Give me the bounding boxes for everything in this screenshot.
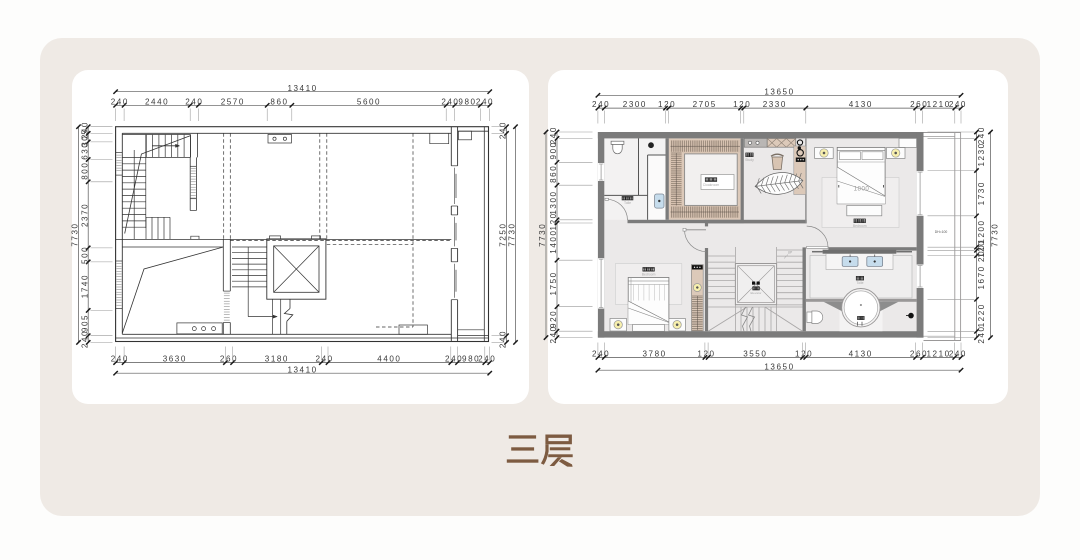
svg-text:1740: 1740	[80, 274, 89, 298]
svg-text:240: 240	[316, 355, 334, 364]
svg-text:240: 240	[592, 100, 610, 109]
svg-text:3180: 3180	[265, 355, 289, 364]
svg-text:240: 240	[977, 325, 986, 343]
svg-text:2330: 2330	[763, 100, 787, 109]
svg-text:240: 240	[111, 97, 129, 106]
svg-text:120: 120	[733, 100, 751, 109]
svg-text:240: 240	[80, 330, 89, 348]
svg-text:3780: 3780	[642, 350, 666, 359]
svg-text:13410: 13410	[287, 365, 317, 374]
svg-text:1400: 1400	[549, 229, 558, 253]
svg-text:120: 120	[697, 350, 715, 359]
svg-text:Bedroom: Bedroom	[642, 272, 656, 276]
svg-text:240: 240	[499, 330, 508, 348]
svg-text:2300: 2300	[623, 100, 647, 109]
svg-text:1220: 1220	[977, 303, 986, 327]
svg-text:1800: 1800	[854, 186, 870, 193]
svg-text:900: 900	[549, 141, 558, 159]
svg-text:Elevator: Elevator	[750, 291, 761, 295]
svg-text:860: 860	[270, 97, 288, 106]
svg-text:7250: 7250	[499, 222, 508, 246]
svg-text:13650: 13650	[764, 362, 794, 371]
svg-text:1670: 1670	[977, 265, 986, 289]
svg-text:1210: 1210	[927, 100, 951, 109]
svg-text:500: 500	[80, 246, 89, 264]
svg-text:240: 240	[445, 355, 463, 364]
svg-text:Study: Study	[745, 158, 754, 162]
svg-text:240: 240	[949, 100, 967, 109]
svg-text:800: 800	[80, 162, 89, 180]
svg-text:240: 240	[185, 97, 203, 106]
svg-text:1730: 1730	[977, 181, 986, 205]
svg-text:7730: 7730	[508, 222, 517, 246]
svg-text:630: 630	[80, 142, 89, 160]
svg-text:1750: 1750	[549, 271, 558, 295]
svg-text:7730: 7730	[538, 223, 547, 247]
svg-text:5600: 5600	[357, 97, 381, 106]
svg-text:905: 905	[80, 314, 89, 332]
svg-text:4130: 4130	[849, 350, 873, 359]
svg-text:3550: 3550	[743, 350, 767, 359]
svg-text:240: 240	[977, 126, 986, 144]
svg-text:240: 240	[549, 325, 558, 343]
svg-text:4400: 4400	[377, 355, 401, 364]
svg-text:240: 240	[478, 355, 496, 364]
svg-text:1300: 1300	[549, 190, 558, 214]
svg-text:260: 260	[910, 350, 928, 359]
svg-text:Toile: Toile	[624, 201, 631, 205]
svg-text:4130: 4130	[849, 100, 873, 109]
svg-text:Toile: Toile	[857, 281, 864, 285]
svg-text:860: 860	[549, 165, 558, 183]
svg-text:240: 240	[476, 97, 494, 106]
svg-text:3630: 3630	[163, 355, 187, 364]
svg-text:13410: 13410	[287, 84, 317, 93]
svg-text:260: 260	[910, 100, 928, 109]
svg-text:120: 120	[549, 212, 558, 230]
svg-text:7730: 7730	[71, 222, 80, 246]
svg-text:240: 240	[592, 350, 610, 359]
svg-text:920: 920	[549, 310, 558, 328]
svg-text:240: 240	[441, 97, 459, 106]
svg-text:240: 240	[949, 350, 967, 359]
svg-text:2705: 2705	[693, 100, 717, 109]
svg-text:Bedroom: Bedroom	[853, 224, 867, 228]
svg-text:240: 240	[111, 355, 129, 364]
svg-text:980: 980	[458, 97, 476, 106]
svg-text:7730: 7730	[990, 223, 999, 247]
svg-text:120: 120	[795, 350, 813, 359]
svg-text:13650: 13650	[764, 87, 794, 96]
svg-text:UP: UP	[788, 251, 792, 255]
svg-text:1210: 1210	[926, 350, 950, 359]
svg-text:DH=100: DH=100	[935, 230, 948, 234]
svg-text:Cloakroom: Cloakroom	[703, 183, 720, 187]
svg-text:200: 200	[977, 244, 986, 262]
svg-text:260: 260	[220, 355, 238, 364]
svg-text:2370: 2370	[80, 203, 89, 227]
svg-text:2440: 2440	[145, 97, 169, 106]
svg-text:2570: 2570	[221, 97, 245, 106]
svg-text:120: 120	[658, 100, 676, 109]
svg-text:240: 240	[499, 121, 508, 139]
svg-text:1230: 1230	[977, 142, 986, 166]
